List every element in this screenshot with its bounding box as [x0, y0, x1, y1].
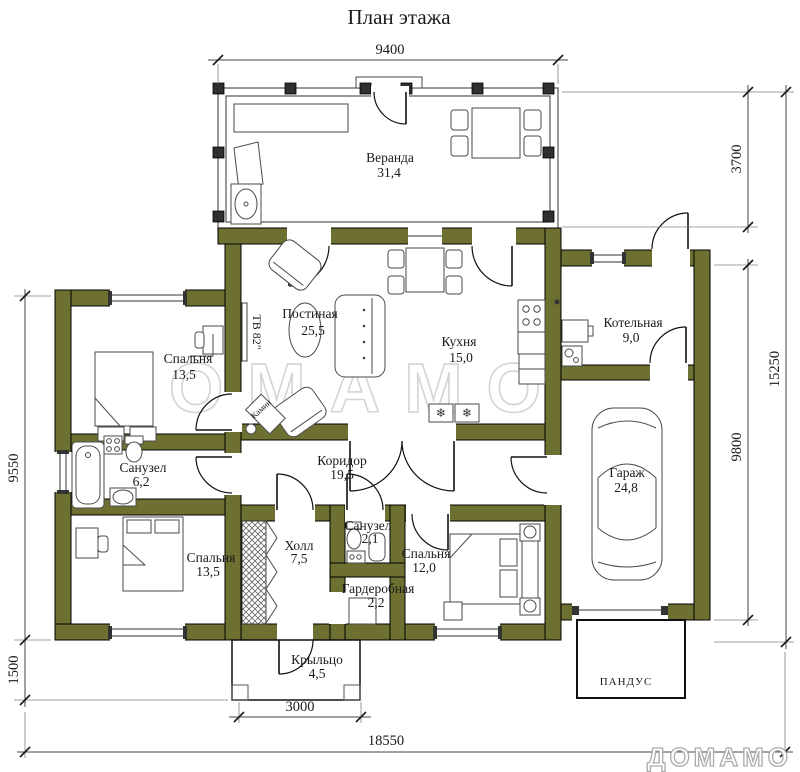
- stove: [518, 300, 545, 332]
- snowflake-icon: ❄: [462, 406, 472, 420]
- window-bathroom-left: [54, 450, 72, 494]
- floor-plan-page: План этажа ДОМАМО: [0, 0, 800, 772]
- label-kitchen: Кухня: [442, 334, 477, 349]
- label-living: Постиная: [282, 306, 337, 321]
- area-boiler: 9,0: [623, 330, 640, 345]
- label-porch: Крыльцо: [291, 652, 343, 667]
- label-corridor: Коридор: [317, 453, 367, 468]
- garage-gate: [572, 603, 668, 621]
- furniture-bedroom-bottom-right: [444, 524, 540, 620]
- area-living: 25,5: [301, 323, 325, 338]
- area-bedroom-bottom-left: 13,5: [196, 564, 220, 579]
- snowflake-icon: ❄: [436, 406, 446, 420]
- water-heater: [562, 320, 588, 342]
- window-bedroom-top: [108, 289, 187, 307]
- door-corridor-garage: [511, 455, 562, 505]
- window-boiler-top: [590, 249, 626, 267]
- area-garage: 24,8: [614, 480, 638, 495]
- desk: [76, 528, 98, 558]
- dim-porch-width: 3000: [286, 699, 315, 715]
- tv-unit: [242, 303, 247, 361]
- area-bedroom-top: 13,5: [172, 367, 196, 382]
- label-bedroom-top: Спальня: [164, 351, 213, 366]
- page-title: План этажа: [347, 5, 451, 29]
- label-boiler: Котельная: [603, 315, 662, 330]
- label-garage: Гараж: [609, 465, 645, 480]
- dim-left-house-depth: 9550: [6, 454, 22, 483]
- dim-top-width: 9400: [376, 42, 405, 58]
- label-bedroom-bottom-right: Спальня: [402, 546, 451, 561]
- label-ramp: ПАНДУС: [600, 676, 653, 688]
- dim-total-width: 18550: [368, 733, 404, 749]
- window-bedroom-right: [433, 623, 502, 641]
- area-bathroom-main: 6,2: [133, 474, 150, 489]
- area-wardrobe: 2,2: [368, 595, 385, 610]
- door-boiler-garage: [650, 327, 688, 381]
- dim-veranda-depth: 3700: [729, 145, 745, 174]
- door-bathroom-main: [196, 453, 242, 495]
- door-boiler-exterior: [652, 213, 690, 267]
- furniture-bedroom-bottom-left: [76, 517, 183, 591]
- washer: [104, 436, 122, 454]
- brand-logo: ДОМАМО: [647, 742, 792, 772]
- floor-plan-drawing: План этажа ДОМАМО: [0, 0, 800, 772]
- dim-right-total-depth: 15250: [767, 351, 783, 387]
- label-bedroom-bottom-left: Спальня: [187, 550, 236, 565]
- door-veranda-kitchen: [472, 227, 516, 286]
- label-wardrobe: Гардеробная: [342, 581, 415, 596]
- dim-porch-depth: 1500: [6, 656, 22, 685]
- area-porch: 4,5: [309, 666, 326, 681]
- window-living-veranda: [408, 227, 442, 245]
- wardrobe-hall: [242, 521, 277, 624]
- label-bathroom-main: Санузел: [119, 460, 166, 475]
- window-bedroom-bottom: [108, 623, 187, 641]
- area-corridor: 19,5: [330, 467, 354, 482]
- door-wardrobe: [329, 592, 346, 624]
- stool: [444, 602, 462, 620]
- label-veranda: Веранда: [366, 150, 414, 165]
- area-kitchen: 15,0: [449, 350, 473, 365]
- sink: [110, 488, 136, 506]
- dim-right-house-depth: 9800: [729, 433, 745, 462]
- area-bathroom-small: 2,1: [362, 531, 379, 546]
- area-bedroom-bottom-right: 12,0: [412, 560, 436, 575]
- door-bedroom-right: [406, 504, 450, 550]
- area-veranda: 31,4: [377, 165, 401, 180]
- area-hall: 7,5: [291, 551, 308, 566]
- label-tv: ТВ 82": [250, 314, 264, 349]
- door-hall: [275, 474, 315, 522]
